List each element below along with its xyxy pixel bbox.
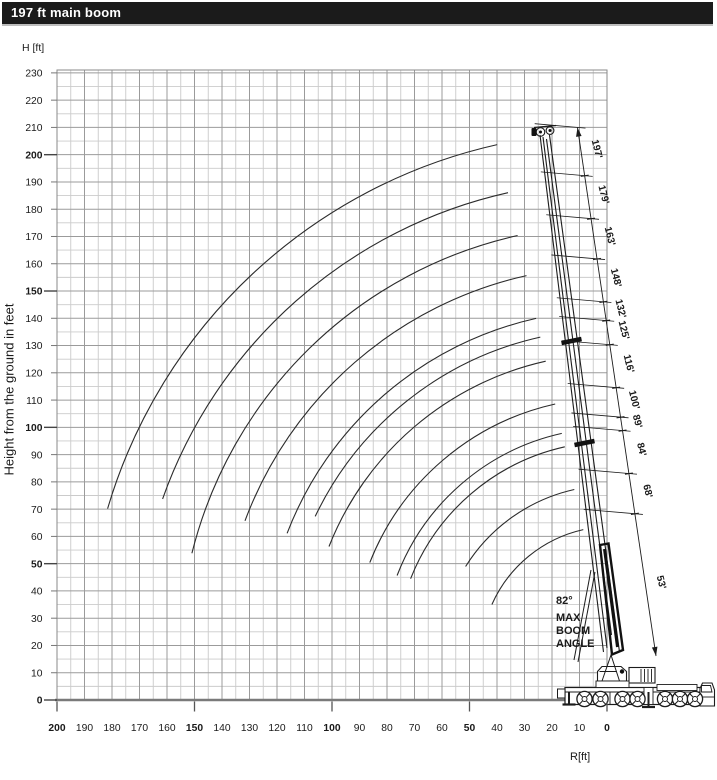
boom-length-label: 179' — [596, 184, 611, 205]
boom-length-label: 148' — [608, 267, 623, 288]
x-tick-label: 20 — [546, 723, 558, 734]
y-tick-label: 110 — [26, 396, 43, 407]
x-tick-label: 80 — [381, 723, 393, 734]
range-arc-132ft — [287, 318, 536, 533]
y-tick-label: 80 — [31, 478, 43, 489]
boom-length-label: 132' — [612, 298, 627, 319]
y-tick-label: 220 — [25, 96, 42, 107]
y-tick-label: 190 — [25, 178, 42, 189]
x-tick-label: 100 — [323, 723, 340, 734]
x-tick-label: 70 — [409, 723, 421, 734]
x-tick-label: 190 — [76, 723, 93, 734]
y-tick-label: 150 — [25, 287, 42, 298]
boom-length-label: 84' — [634, 442, 648, 458]
y-tick-label: 40 — [31, 587, 43, 598]
boom-length-label: 116' — [621, 353, 636, 374]
x-axis-label: R[ft] — [570, 751, 590, 763]
boom-section-line — [540, 135, 604, 652]
dimension-arrow — [652, 647, 658, 656]
boom-section-line — [543, 137, 607, 648]
range-diagram-svg: 53'68'84'89'100'116'125'132'148'163'179'… — [0, 0, 717, 780]
y-tick-label: 20 — [31, 641, 43, 652]
y-tick-label: 70 — [31, 505, 43, 516]
boom-length-label: 163' — [602, 226, 617, 247]
boom-length-label: 68' — [640, 483, 654, 499]
title-bar: 197 ft main boom — [2, 2, 713, 26]
y-axis-label: Height from the ground in feet — [2, 240, 17, 540]
x-tick-label: 180 — [103, 723, 120, 734]
range-arc-148ft — [245, 276, 527, 521]
x-tick-label: 0 — [604, 723, 610, 734]
max-boom-angle-value: 82° — [556, 595, 595, 608]
max-boom-angle-line3: ANGLE — [556, 638, 595, 651]
x-tick-label: 50 — [464, 723, 476, 734]
y-tick-label: 130 — [25, 341, 42, 352]
carrier-bumper — [558, 689, 566, 698]
range-arc-125ft — [315, 337, 540, 516]
x-tick-label: 40 — [491, 723, 503, 734]
y-tick-label: 170 — [25, 232, 42, 243]
y-tick-label: 50 — [31, 559, 43, 570]
x-tick-label: 130 — [241, 723, 258, 734]
x-tick-label: 150 — [186, 723, 203, 734]
range-arc-53ft — [492, 530, 583, 605]
boom-length-label: 197' — [589, 139, 604, 160]
sheave-pin — [539, 131, 542, 134]
x-tick-label: 110 — [296, 723, 313, 734]
y-tick-label: 210 — [25, 123, 42, 134]
range-arc-163ft — [192, 236, 518, 554]
crane-range-diagram: 53'68'84'89'100'116'125'132'148'163'179'… — [0, 0, 717, 780]
x-tick-label: 60 — [436, 723, 448, 734]
range-arc-68ft — [466, 490, 575, 567]
x-tick-label: 90 — [354, 723, 366, 734]
x-tick-label: 160 — [158, 723, 175, 734]
max-boom-angle-line1: MAX — [556, 612, 595, 625]
y-tick-label: 200 — [25, 150, 42, 161]
y-tick-label: 180 — [25, 205, 42, 216]
y-tick-label: 140 — [25, 314, 42, 325]
x-tick-label: 200 — [48, 723, 65, 734]
max-boom-angle-line2: BOOM — [556, 625, 595, 638]
dimension-arrow — [576, 128, 582, 137]
page-title: 197 ft main boom — [2, 2, 713, 24]
y-tick-label: 100 — [25, 423, 42, 434]
x-tick-label: 120 — [268, 723, 285, 734]
x-tick-label: 170 — [131, 723, 148, 734]
deck-skirt — [657, 685, 697, 691]
range-arc-197ft — [108, 145, 498, 509]
y-tick-label: 30 — [31, 614, 43, 625]
x-tick-label: 30 — [519, 723, 531, 734]
range-arc-116ft — [329, 361, 546, 546]
boom-length-label: 53' — [654, 575, 668, 591]
y-tick-label: 120 — [25, 369, 42, 380]
max-boom-angle-annotation: 82° MAX BOOM ANGLE — [556, 595, 595, 651]
superstructure-cab — [598, 667, 627, 682]
head-block — [532, 128, 537, 136]
boom-length-label: 100' — [626, 389, 641, 410]
y-tick-label: 10 — [31, 668, 43, 679]
y-axis-header: H [ft] — [22, 42, 44, 54]
boom-length-label: 125' — [616, 320, 631, 341]
y-tick-label: 160 — [25, 259, 42, 270]
y-tick-label: 90 — [31, 450, 43, 461]
y-tick-label: 0 — [37, 696, 43, 707]
boom-length-label: 89' — [630, 414, 644, 430]
sheave-pin — [549, 129, 552, 132]
x-tick-label: 140 — [213, 723, 230, 734]
y-tick-label: 230 — [25, 69, 42, 80]
x-tick-label: 10 — [574, 723, 586, 734]
y-tick-label: 60 — [31, 532, 43, 543]
